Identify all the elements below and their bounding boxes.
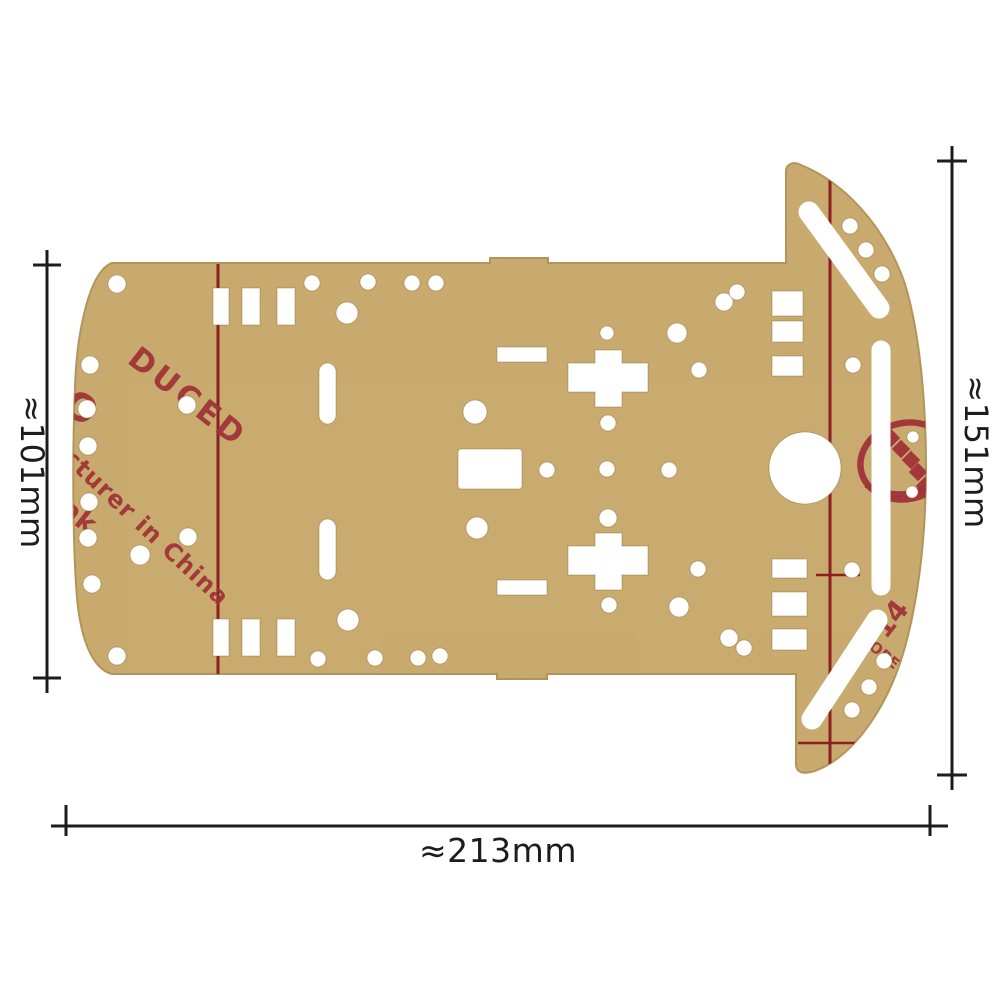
mounting-hole	[432, 648, 448, 664]
mounting-hole	[367, 650, 383, 666]
motor-mount-cutout	[458, 449, 522, 489]
mounting-hole	[81, 356, 99, 374]
mounting-hole	[310, 651, 326, 667]
left-height-label: ≈101mm	[13, 395, 51, 548]
mounting-hole	[601, 597, 617, 613]
slot-rect	[277, 288, 295, 325]
mounting-hole	[844, 562, 860, 578]
slot-rect	[772, 356, 803, 376]
caster-hole	[769, 432, 841, 504]
mounting-hole	[466, 517, 488, 539]
left-height-dimension: ≈101mm	[13, 250, 61, 693]
mounting-hole	[108, 647, 126, 665]
mounting-hole	[600, 326, 614, 340]
mounting-hole	[600, 415, 616, 431]
mounting-hole	[404, 275, 420, 291]
mounting-hole	[858, 242, 874, 258]
right-height-label: ≈151mm	[957, 375, 995, 528]
slot-rect	[772, 291, 803, 316]
product-diagram: DUCED O ak cturer in China 14 OPE	[0, 0, 1000, 1000]
slot-rect	[277, 619, 295, 656]
mounting-hole	[360, 274, 376, 290]
mounting-hole	[108, 275, 126, 293]
mounting-hole	[842, 218, 858, 234]
mounting-hole	[336, 302, 358, 324]
mounting-hole	[83, 575, 101, 593]
mounting-hole	[304, 275, 320, 291]
mounting-hole	[844, 702, 860, 718]
mounting-hole	[876, 653, 892, 669]
slot-rect	[213, 288, 229, 325]
mounting-hole	[178, 396, 196, 414]
slot-horizontal	[497, 580, 547, 595]
slot-rect	[242, 619, 260, 656]
mounting-hole	[661, 462, 677, 478]
slot-rect	[213, 619, 229, 656]
mounting-hole	[907, 431, 919, 443]
mounting-hole	[720, 629, 738, 647]
slot-vertical	[319, 363, 336, 424]
mounting-hole	[669, 597, 689, 617]
right-height-dimension: ≈151mm	[937, 146, 995, 790]
mounting-hole	[599, 461, 615, 477]
slot-horizontal	[497, 347, 547, 362]
mounting-hole	[874, 266, 890, 282]
stamp-arrowhead	[928, 471, 950, 489]
mounting-hole	[79, 529, 97, 547]
mounting-hole	[599, 509, 617, 527]
slot-rect	[772, 629, 807, 650]
mounting-hole	[906, 486, 918, 498]
mounting-hole	[861, 679, 877, 695]
mounting-hole	[428, 275, 444, 291]
chassis-dimension-drawing: DUCED O ak cturer in China 14 OPE	[0, 0, 1000, 1000]
slot-rect	[772, 559, 807, 578]
mounting-hole	[179, 528, 197, 546]
slot-rect	[772, 592, 807, 616]
mounting-hole	[79, 437, 97, 455]
slot-rect	[242, 288, 260, 325]
mounting-hole	[539, 462, 555, 478]
mounting-hole	[729, 284, 745, 300]
mounting-hole	[736, 640, 752, 656]
mounting-hole	[463, 400, 487, 424]
mounting-hole	[337, 609, 359, 631]
mounting-hole	[845, 357, 861, 373]
mounting-hole	[691, 362, 707, 378]
slot-rect	[772, 321, 803, 342]
mounting-hole	[80, 493, 98, 511]
mounting-hole	[78, 400, 96, 418]
bottom-width-dimension: ≈213mm	[51, 805, 948, 870]
mounting-hole	[130, 545, 150, 565]
slot-vertical	[319, 519, 336, 580]
bottom-width-label: ≈213mm	[419, 831, 577, 870]
mounting-hole	[667, 323, 687, 343]
mounting-hole	[410, 650, 426, 666]
mounting-hole	[690, 561, 706, 577]
